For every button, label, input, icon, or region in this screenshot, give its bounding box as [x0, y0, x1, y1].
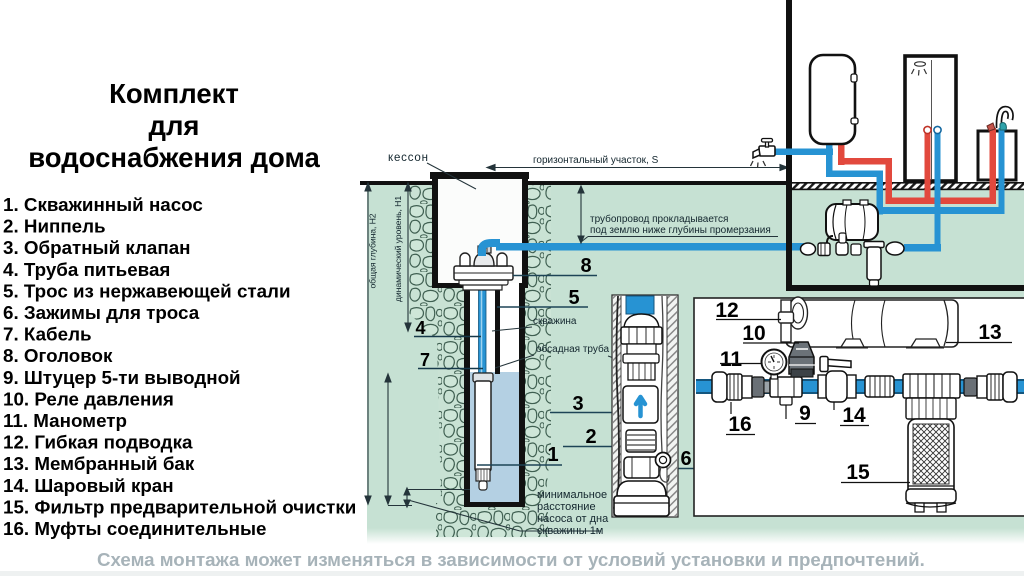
svg-text:5: 5 [568, 287, 579, 309]
svg-text:16. Муфты соединительные: 16. Муфты соединительные [3, 518, 266, 539]
svg-text:насоса от дна: насоса от дна [537, 513, 609, 525]
svg-text:для: для [149, 110, 200, 141]
svg-text:12. Гибкая подводка: 12. Гибкая подводка [3, 432, 193, 453]
svg-text:7: 7 [420, 350, 430, 370]
svg-text:горизонтальный участок, S: горизонтальный участок, S [533, 155, 659, 166]
svg-text:10: 10 [742, 322, 765, 345]
svg-text:под землю ниже глубины промерз: под землю ниже глубины промерзания [590, 224, 771, 236]
svg-text:11. Манометр: 11. Манометр [3, 410, 127, 431]
svg-text:трубопровод прокладывается: трубопровод прокладывается [590, 213, 728, 225]
svg-text:14. Шаровый кран: 14. Шаровый кран [3, 475, 174, 496]
svg-text:10. Реле давления: 10. Реле давления [3, 388, 174, 409]
svg-text:скважина: скважина [533, 316, 577, 327]
svg-text:9: 9 [799, 402, 811, 425]
svg-text:водоснабжения дома: водоснабжения дома [28, 142, 320, 173]
svg-text:15. Фильтр предварительной очи: 15. Фильтр предварительной очистки [3, 496, 356, 517]
svg-text:обсадная труба: обсадная труба [536, 343, 609, 355]
svg-text:минимальное: минимальное [537, 489, 607, 501]
svg-text:8. Оголовок: 8. Оголовок [3, 345, 113, 366]
svg-text:15: 15 [846, 461, 870, 484]
svg-text:1: 1 [547, 444, 558, 466]
svg-text:12: 12 [715, 299, 738, 322]
svg-text:4. Труба питьевая: 4. Труба питьевая [3, 259, 170, 280]
svg-text:5. Трос из нержавеющей стали: 5. Трос из нержавеющей стали [3, 280, 291, 301]
svg-text:7. Кабель: 7. Кабель [3, 324, 92, 345]
svg-text:13: 13 [978, 321, 1001, 344]
svg-text:8: 8 [580, 255, 591, 277]
svg-text:общая глубина, Н2: общая глубина, Н2 [368, 213, 378, 288]
svg-text:расстояние: расстояние [537, 501, 596, 513]
svg-text:кессон: кессон [388, 152, 429, 164]
svg-text:2. Ниппель: 2. Ниппель [3, 216, 106, 237]
svg-text:13. Мембранный бак: 13. Мембранный бак [3, 453, 195, 474]
svg-text:2: 2 [585, 426, 596, 448]
svg-text:3. Обратный клапан: 3. Обратный клапан [3, 237, 191, 258]
svg-text:6. Зажимы для троса: 6. Зажимы для троса [3, 302, 200, 323]
svg-text:9. Штуцер 5-ти выводной: 9. Штуцер 5-ти выводной [3, 367, 241, 388]
svg-text:динамический уровень, Н1: динамический уровень, Н1 [393, 196, 403, 302]
svg-text:6: 6 [680, 448, 691, 470]
svg-text:3: 3 [572, 393, 583, 415]
svg-text:Схема монтажа может изменяться: Схема монтажа может изменяться в зависим… [97, 549, 925, 570]
svg-text:16: 16 [728, 413, 751, 436]
svg-text:11: 11 [720, 348, 743, 371]
svg-text:14: 14 [842, 404, 866, 427]
svg-text:4: 4 [415, 318, 425, 338]
svg-text:1. Скважинный насос: 1. Скважинный насос [3, 194, 203, 215]
svg-text:скважины 1м: скважины 1м [537, 525, 603, 537]
svg-text:Комплект: Комплект [109, 78, 239, 109]
